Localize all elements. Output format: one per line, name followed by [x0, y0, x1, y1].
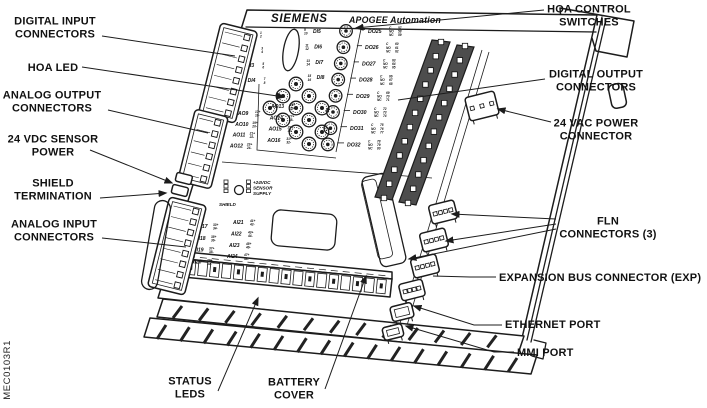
hoa-switch-dot [331, 110, 335, 114]
do-label: DO31 [350, 126, 364, 132]
ai-label: AI24 [226, 254, 238, 260]
led-mark [356, 281, 359, 286]
ai-terminal: 36- [211, 238, 216, 242]
fln-connector-2-pin [434, 237, 439, 242]
digital-input-connector-pin [233, 77, 240, 84]
callout-line: HOA CONTROL [547, 4, 631, 16]
callout-line: SHIELD [32, 178, 74, 190]
callout-mmi: MMI PORT [517, 347, 574, 360]
ai-terminal: 46- [245, 245, 251, 249]
di-label: DI6 [314, 44, 322, 50]
do-contact: NC [383, 66, 388, 70]
do-strip-pin [428, 68, 433, 73]
callout-battery-cover: BATTERYCOVER [268, 377, 320, 402]
analog-output-connector-pin [214, 119, 221, 126]
callout-line: DIGITAL INPUT [14, 16, 96, 28]
di-label: DI7 [315, 60, 323, 66]
fln-connector-1-pin [443, 209, 448, 214]
device-diagram: SIEMENS APOGEE Automation DO25CNONC57585… [0, 0, 707, 408]
analog-input-connector-pin [187, 229, 194, 236]
figure-code: MEC0103R1 [2, 340, 13, 400]
analog-input-connector-pin [182, 250, 189, 257]
hoa-switch-dot [342, 45, 346, 49]
do-terminal: 68 [389, 82, 393, 86]
di-label: DI5 [313, 29, 321, 35]
led-mark [308, 276, 311, 281]
do-strip-pin [438, 39, 443, 44]
do-terminal: 80 [377, 147, 381, 151]
do-strip-pin [392, 167, 397, 172]
sensor-supply-text: +24VDC [253, 180, 271, 185]
analog-output-connector-pin [206, 153, 213, 160]
expansion-connector-pin [412, 287, 417, 292]
analog-input-connector-pin [179, 261, 186, 268]
callout-line: CONNECTORS (3) [559, 228, 656, 240]
di-terminal: 10 [304, 32, 308, 36]
analog-input-connector-pin [190, 219, 197, 226]
do-label: DO29 [356, 94, 370, 100]
hoa-switch-dot [336, 78, 340, 82]
ao-terminal: 22- [249, 135, 255, 139]
do-label: DO30 [353, 110, 367, 116]
fln-connector-3-pin [415, 266, 420, 271]
fln-connector-3-pin [430, 262, 435, 267]
fln-connector-2-pin [429, 238, 434, 243]
do-strip-pin [431, 129, 436, 134]
ao-terminal: 28- [288, 118, 294, 122]
cluster-knob-dot [320, 130, 324, 134]
do-strip-pin [386, 181, 391, 186]
ao-label: AO16 [266, 138, 280, 144]
led-mark [213, 267, 216, 272]
callout-vac-power: 24 VAC POWERCONNECTOR [554, 118, 639, 143]
callout-status-leds: STATUSLEDS [168, 376, 212, 401]
led-mark [380, 283, 383, 288]
do-strip-pin [452, 72, 457, 77]
callout-analog-output: ANALOG OUTPUTCONNECTORS [3, 90, 102, 115]
analog-input-connector-pin [192, 208, 199, 215]
di-terminal: 8 [264, 81, 266, 85]
callout-line: COVER [274, 389, 314, 401]
ao-label: AO13 [270, 104, 284, 110]
led-mark [332, 279, 335, 284]
callout-line: STATUS [168, 376, 212, 388]
do-strip-pin [436, 115, 441, 120]
led-mark [261, 272, 264, 277]
do-terminal: 74 [383, 114, 387, 118]
callout-line: FLN [597, 216, 619, 228]
analog-input-connector-pin [184, 240, 191, 247]
analog-input-connector-pin [177, 271, 184, 278]
vac-power-connector-pin [470, 106, 475, 111]
di-terminal: 14 [306, 62, 310, 66]
callout-line: ANALOG OUTPUT [3, 90, 102, 102]
di-terminal: 6 [262, 65, 264, 69]
callout-line: TERMINATION [14, 190, 92, 202]
fln-connector-1-pin [448, 208, 453, 213]
callout-line: DIGITAL OUTPUT [549, 69, 643, 81]
digital-input-connector-pin [238, 56, 245, 63]
leader-shield [100, 193, 166, 198]
callout-line: 24 VAC POWER [554, 118, 639, 130]
do-strip-pin [442, 100, 447, 105]
analog-output-connector-pin [200, 176, 207, 183]
callout-line: MMI PORT [517, 347, 574, 359]
brand-text: SIEMENS [271, 13, 328, 25]
do-label: DO26 [365, 45, 379, 51]
do-strip-pin [423, 82, 428, 87]
callout-line: SWITCHES [559, 16, 619, 28]
hoa-switch-dot [334, 94, 338, 98]
leader-sensor-power [90, 150, 172, 183]
do-strip-pin [462, 43, 467, 48]
digital-input-connector-pin [241, 45, 248, 52]
do-contact: NC [371, 130, 376, 134]
ao-terminal: 26- [289, 107, 295, 111]
callout-line: BATTERY [268, 377, 320, 389]
ai-label: AI22 [230, 231, 242, 237]
callout-hoa-led: HOA LED [28, 62, 79, 75]
fln-connector-3-pin [425, 263, 430, 268]
digital-input-connector-pin [244, 34, 251, 41]
ai-terminal: 42- [249, 223, 255, 227]
do-strip-pin [397, 153, 402, 158]
callout-expansion: EXPANSION BUS CONNECTOR (EXP) [499, 272, 701, 285]
sensor-supply-text: SENSOR [253, 186, 273, 191]
callout-digital-input: DIGITAL INPUTCONNECTORS [14, 16, 96, 41]
do-strip-pin [405, 200, 410, 205]
do-terminal: 77 [380, 130, 384, 134]
callout-line: ETHERNET PORT [505, 319, 601, 331]
ai-terminal: 44- [247, 234, 253, 238]
do-strip-pin [416, 172, 421, 177]
fln-connector-1-pin [438, 210, 443, 215]
do-contact: NC [380, 82, 385, 86]
cluster-knob-dot [294, 82, 298, 86]
ao-terminal: 24- [246, 146, 252, 150]
di-terminal: 12 [305, 47, 309, 51]
shield-termination-tab [171, 184, 189, 197]
cluster-knob-dot [281, 94, 285, 98]
analog-output-connector-pin [203, 164, 210, 171]
hoa-switch-dot [326, 143, 330, 147]
do-strip-pin [433, 53, 438, 58]
ai-terminal: 38- [209, 250, 214, 254]
cluster-knob-dot [307, 142, 311, 146]
cluster-knob-dot [307, 118, 311, 122]
do-strip-pin [407, 124, 412, 129]
di-terminal: 4 [260, 50, 263, 54]
ao-label: AO11 [232, 133, 246, 139]
callout-line: POWER [32, 146, 75, 158]
do-strip-pin [447, 86, 452, 91]
led-mark [284, 274, 287, 279]
callout-line: EXPANSION BUS CONNECTOR (EXP) [499, 272, 701, 284]
vac-power-connector-pin [480, 104, 485, 109]
callout-line: ANALOG INPUT [11, 219, 97, 231]
do-strip-pin [412, 110, 417, 115]
digital-input-connector-pin [235, 67, 242, 74]
hoa-switch-dot [329, 126, 333, 130]
sensor-supply-text: SUPPLY [253, 191, 272, 196]
callout-line: LEDS [175, 388, 205, 400]
do-strip-pin [381, 195, 386, 200]
ao-terminal: 18- [255, 114, 260, 118]
callout-line: CONNECTOR [560, 130, 633, 142]
do-label: DO28 [359, 78, 373, 84]
callout-line: 24 VDC SENSOR [8, 134, 99, 146]
hoa-switch-dot [344, 29, 348, 33]
vac-power-connector-pin [489, 101, 494, 106]
led-mark [237, 269, 240, 274]
do-strip-pin [402, 139, 407, 144]
do-label: DO32 [347, 142, 361, 148]
do-contact: NC [386, 49, 391, 53]
ai-label: AI21 [232, 220, 244, 226]
ao-label: AO9 [237, 111, 249, 117]
fln-connector-1-pin [433, 212, 438, 217]
expansion-connector-pin [403, 289, 408, 294]
callout-hoa-switches: HOA CONTROLSWITCHES [547, 4, 631, 29]
ai-label: AI23 [228, 243, 240, 249]
callout-line: HOA LED [28, 62, 79, 74]
hoa-switch-dot [339, 62, 343, 66]
do-contact: NC [368, 147, 373, 151]
shield-text: SHIELD [219, 202, 237, 207]
callout-line: CONNECTORS [12, 102, 92, 114]
callout-fln: FLNCONNECTORS (3) [559, 216, 656, 241]
fln-connector-2-pin [424, 240, 429, 245]
do-terminal: 71 [386, 98, 390, 102]
di-label: DI4 [248, 78, 256, 84]
ao-label: AO14 [269, 115, 283, 121]
di-label: DI8 [317, 75, 325, 81]
cluster-knob-dot [320, 106, 324, 110]
callout-shield-termination: SHIELDTERMINATION [14, 178, 92, 203]
do-strip-pin [457, 58, 462, 63]
callout-line: CONNECTORS [15, 28, 95, 40]
analog-input-connector-pin [174, 282, 181, 289]
cluster-knob-dot [294, 130, 298, 134]
callout-line: CONNECTORS [556, 81, 636, 93]
callout-ethernet: ETHERNET PORT [505, 319, 601, 332]
ao-label: AO15 [268, 127, 282, 133]
digital-input-connector-pin [227, 99, 234, 106]
callout-line: CONNECTORS [14, 231, 94, 243]
ao-label: AO10 [234, 122, 248, 128]
expansion-connector-pin [407, 288, 412, 293]
callout-sensor-power: 24 VDC SENSORPOWER [8, 134, 99, 159]
cluster-knob-dot [307, 94, 311, 98]
do-terminal: 62 [395, 49, 399, 53]
ai-terminal: 34- [213, 227, 218, 231]
ao-terminal: 30- [288, 129, 293, 133]
do-strip-pin [410, 186, 415, 191]
analog-output-connector-pin [209, 142, 216, 149]
digital-input-connector-pin [225, 110, 232, 117]
expansion-connector-pin [416, 286, 421, 291]
fln-connector-3-pin [420, 264, 425, 269]
product-text: APOGEE Automation [348, 15, 441, 25]
di-terminal: 16 [308, 78, 312, 82]
ao-terminal: 32- [286, 141, 291, 145]
ao-terminal: 20- [251, 124, 257, 128]
do-contact: NC [374, 114, 379, 118]
callout-analog-input: ANALOG INPUTCONNECTORS [11, 219, 97, 244]
do-strip-pin [421, 157, 426, 162]
ao-label: AO12 [229, 143, 243, 149]
do-strip-pin [426, 143, 431, 148]
do-contact: NC [377, 98, 382, 102]
do-contact: NC [389, 33, 394, 37]
ai-terminal: 48- [243, 257, 249, 261]
analog-output-connector-pin [211, 131, 218, 138]
do-terminal: 59 [398, 33, 402, 37]
diagram-page: SIEMENS APOGEE Automation DO25CNONC57585… [0, 0, 707, 408]
do-terminal: 65 [392, 66, 396, 70]
di-terminal: 2 [259, 35, 262, 39]
do-label: DO27 [362, 61, 377, 67]
fln-connector-2-pin [439, 236, 444, 241]
do-label: DO25 [368, 29, 382, 35]
callout-digital-output: DIGITAL OUTPUTCONNECTORS [549, 69, 643, 94]
